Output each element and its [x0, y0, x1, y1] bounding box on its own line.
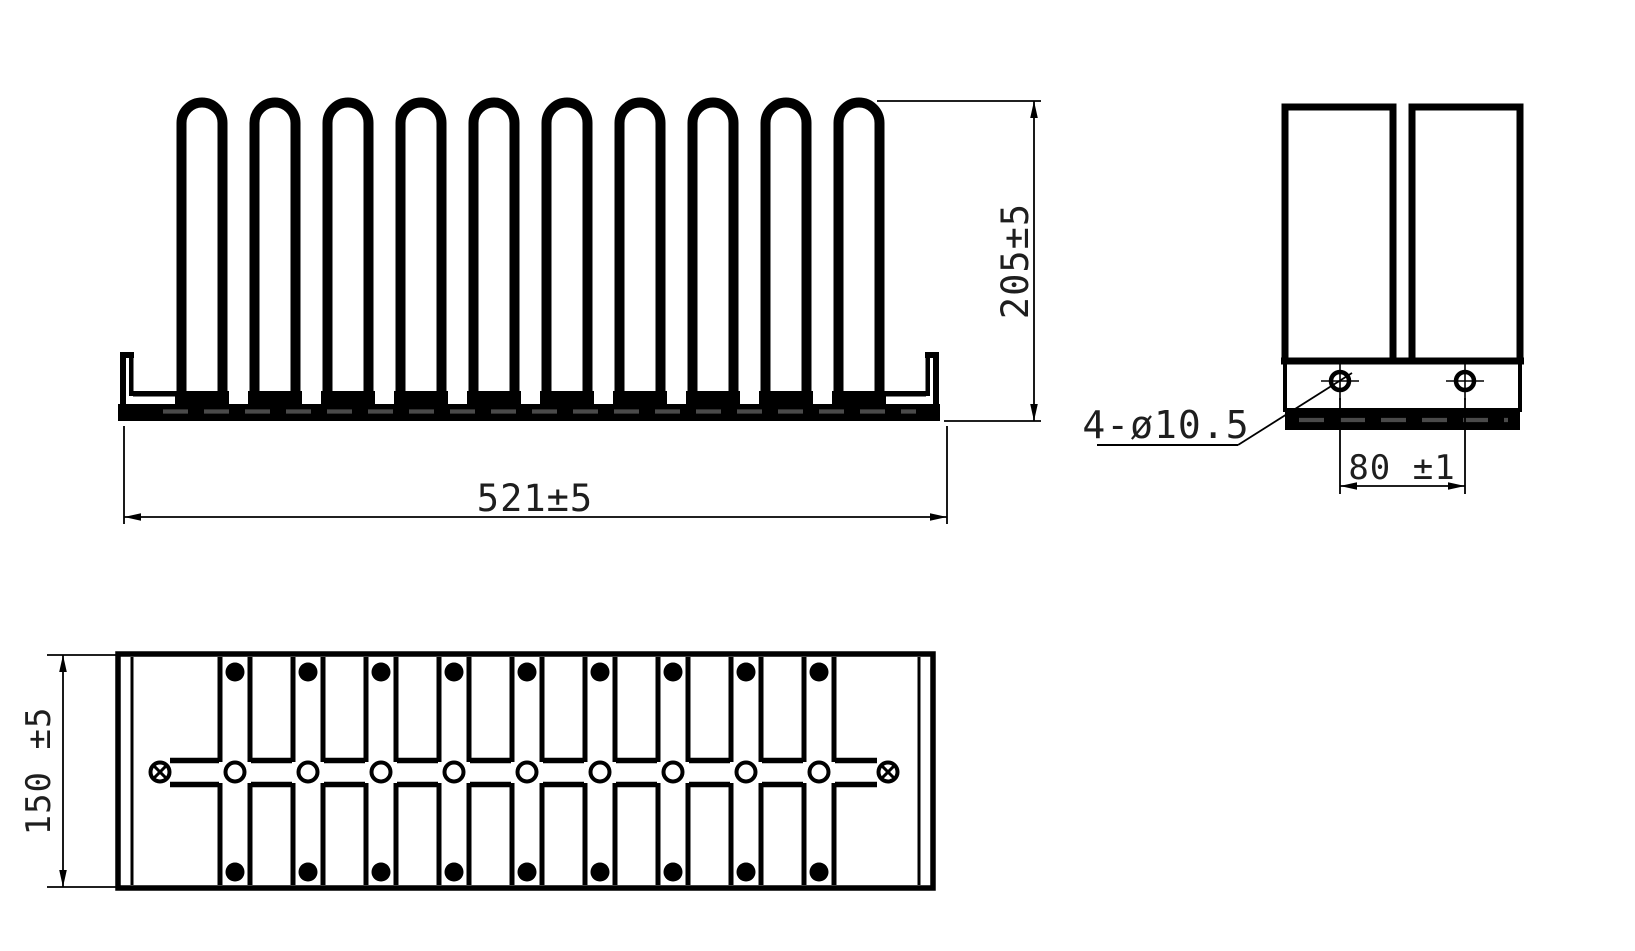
width-dimension-text: 521±5 [477, 477, 593, 520]
loop-foot-pad [832, 391, 886, 404]
front-height-dimension: 205±5 [877, 101, 1041, 421]
depth-dimension-text: 150 ±5 [19, 707, 59, 836]
loop-foot-pad [540, 391, 594, 404]
front-view: 521±5 205±5 [118, 101, 1041, 524]
tube-center-hole [664, 763, 683, 782]
plan-depth-dimension: 150 ±5 [19, 655, 117, 887]
side-base-plate [1285, 361, 1520, 410]
lip-outer-line [120, 352, 126, 404]
side-tube-row-right [1412, 107, 1520, 361]
loop-foot-pad [248, 391, 302, 404]
lip-inner-line [129, 358, 134, 396]
base-lip-left [120, 352, 134, 404]
front-width-dimension: 521±5 [124, 426, 947, 524]
arrowhead [59, 655, 67, 672]
loop-foot-pad [175, 391, 229, 404]
side-view: 4-ø10.5 80 ±1 [1082, 107, 1524, 494]
tube-center-hole [518, 763, 537, 782]
fin-tube-loop [327, 103, 368, 398]
arrowhead [59, 870, 67, 887]
fin-tube-loop [766, 103, 807, 398]
tube-end-dot [299, 863, 318, 882]
loop-foot-pad [613, 391, 667, 404]
fin-tube-loop [839, 103, 880, 398]
tube-end-dot [518, 863, 537, 882]
tube-center-hole [372, 763, 391, 782]
loop-foot-pad [394, 391, 448, 404]
tube-end-dot [810, 863, 829, 882]
tube-end-dot [737, 663, 756, 682]
loop-foot-pad [759, 391, 813, 404]
fin-tube-loop [620, 103, 661, 397]
tube-center-hole [445, 763, 464, 782]
arrowhead [124, 513, 141, 521]
tube-end-dot [664, 863, 683, 882]
fin-tube-loop [547, 103, 588, 398]
front-base-bar [118, 404, 940, 421]
loop-foot-pad [686, 391, 740, 404]
lip-outer-line [933, 352, 939, 404]
tube-end-dot [372, 863, 391, 882]
tube-center-hole [591, 763, 610, 782]
tube-end-dot [518, 663, 537, 682]
loop-foot-pads [175, 391, 886, 404]
fin-tube-loop [693, 103, 734, 398]
fin-tube-loop [255, 103, 296, 398]
technical-drawing-page: 521±5 205±5 4-ø10.5 [0, 0, 1635, 951]
tube-end-dot [664, 663, 683, 682]
arrowhead [1030, 101, 1038, 118]
tube-end-dot [299, 663, 318, 682]
tube-center-hole [810, 763, 829, 782]
base-top-line-left [133, 391, 177, 397]
arrowhead [1030, 404, 1038, 421]
height-dimension-text: 205±5 [994, 203, 1037, 319]
tube-end-dot [591, 863, 610, 882]
tube-end-dot [445, 663, 464, 682]
heatsink-technical-drawing: 521±5 205±5 4-ø10.5 [0, 0, 1635, 951]
tube-center-hole [226, 763, 245, 782]
tube-end-dot [591, 663, 610, 682]
tube-end-dot [226, 863, 245, 882]
tube-end-dot [226, 663, 245, 682]
tube-end-dot [737, 863, 756, 882]
tube-center-hole [737, 763, 756, 782]
tube-end-dot [372, 663, 391, 682]
base-top-line-right [886, 391, 926, 397]
tube-end-dot [810, 663, 829, 682]
loop-foot-pad [467, 391, 521, 404]
tube-center-hole [299, 763, 318, 782]
arrowhead [930, 513, 947, 521]
hole-callout-text: 4-ø10.5 [1082, 403, 1249, 447]
tube-end-dot [445, 863, 464, 882]
fin-tube-loop [182, 103, 223, 397]
hole-spacing-text: 80 ±1 [1348, 448, 1455, 488]
fin-tube-loop [401, 103, 442, 398]
side-tube-row-left [1285, 107, 1393, 361]
loop-foot-pad [321, 391, 375, 404]
plan-view: 150 ±5 [19, 654, 933, 888]
base-lip-right [925, 352, 939, 404]
fin-tube-loops [182, 103, 880, 398]
fin-tube-loop [474, 103, 515, 398]
lip-inner-line [926, 358, 931, 396]
